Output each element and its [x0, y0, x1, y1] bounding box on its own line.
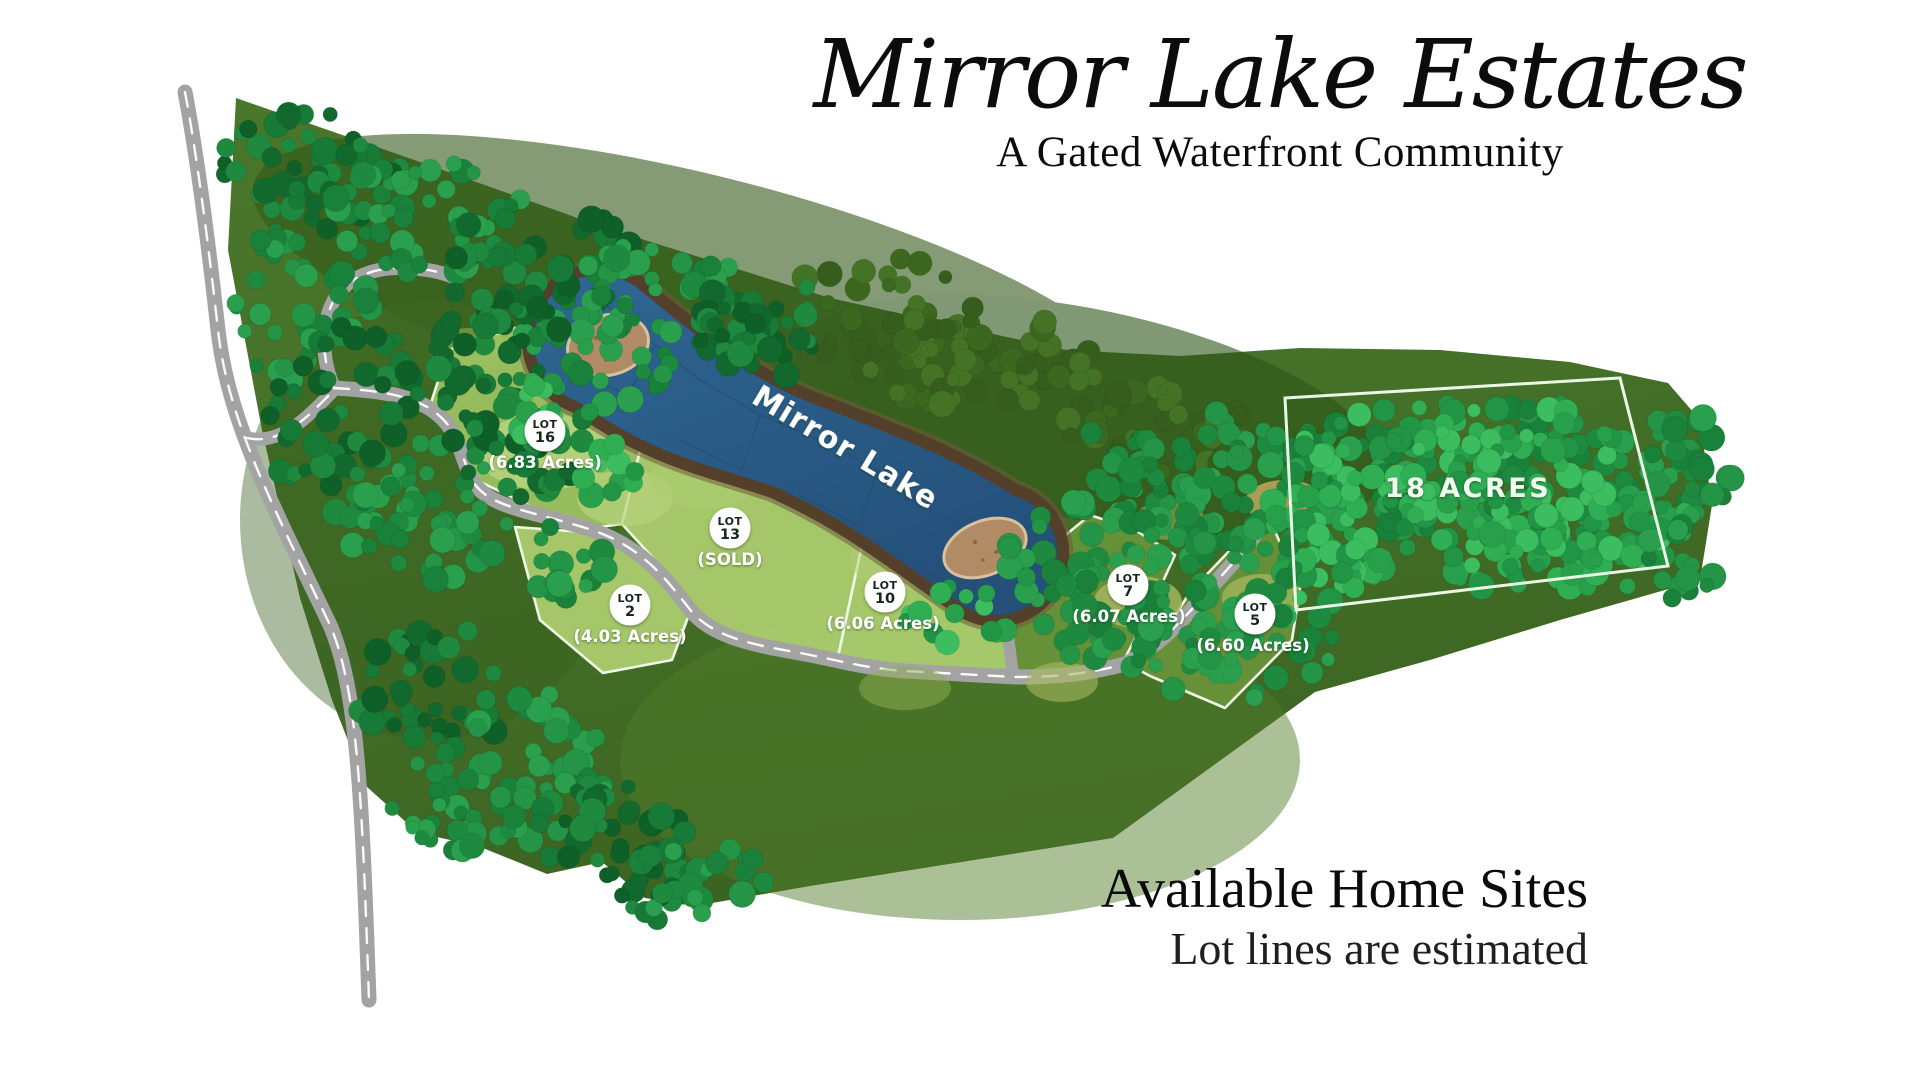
- lot-10-acreage: (6.06 Acres): [826, 614, 939, 633]
- lot-2-acreage: (4.03 Acres): [573, 627, 686, 646]
- lot-16-acreage: (6.83 Acres): [488, 453, 601, 472]
- lot-7-number: 7: [1123, 584, 1133, 600]
- parcel-label: 18 ACRES: [1385, 473, 1551, 504]
- site-map: Mirror Lake 18 ACRES LOT 16 (6.83 Acres)…: [0, 0, 1920, 1080]
- lot-13-number: 13: [720, 527, 740, 543]
- lot-10-number: 10: [875, 591, 895, 607]
- lot-5-number: 5: [1250, 613, 1260, 629]
- lot-2-number: 2: [625, 604, 635, 620]
- lot-7-acreage: (6.07 Acres): [1072, 607, 1185, 626]
- lot-13-status: (SOLD): [697, 550, 762, 569]
- site-plan-page: Mirror Lake 18 ACRES LOT 16 (6.83 Acres)…: [0, 0, 1920, 1080]
- lot-16-number: 16: [535, 430, 555, 446]
- lot-5-acreage: (6.60 Acres): [1196, 636, 1309, 655]
